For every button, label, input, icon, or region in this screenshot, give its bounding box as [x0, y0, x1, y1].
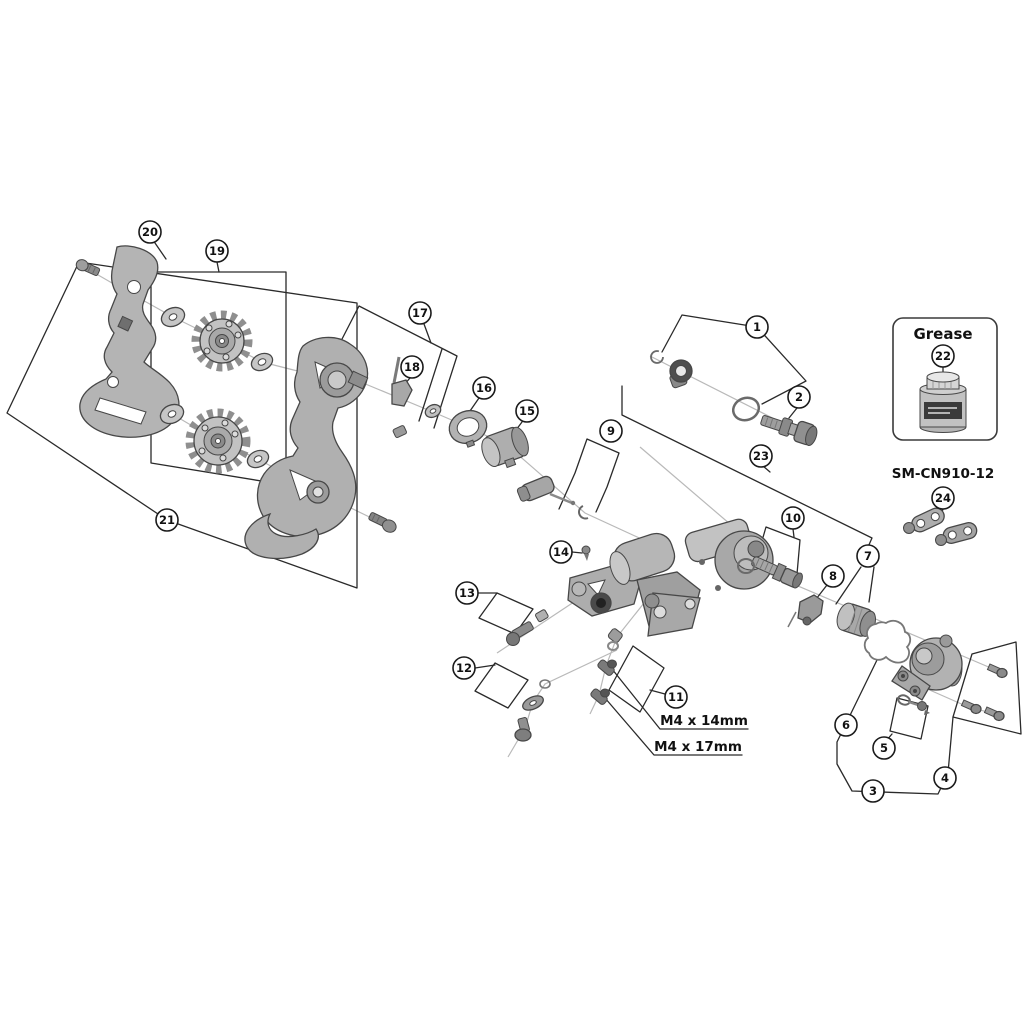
svg-text:17: 17: [412, 306, 428, 320]
callout-13: 13: [456, 582, 478, 604]
callout-6: 6: [835, 714, 857, 736]
svg-text:10: 10: [785, 511, 801, 525]
callout-4: 4: [934, 767, 956, 789]
callout-1: 1: [746, 316, 768, 338]
callout-15: 15: [516, 400, 538, 422]
svg-text:19: 19: [209, 244, 225, 258]
callout-2: 2: [788, 386, 810, 408]
svg-text:3: 3: [869, 784, 877, 798]
guide-pulley: [196, 315, 248, 367]
tension-pulley: [190, 413, 246, 469]
derailleur-body: [568, 517, 773, 636]
svg-text:11: 11: [668, 690, 684, 704]
callout-17: 17: [409, 302, 431, 324]
group-11-box: [609, 646, 665, 712]
callout-21: 21: [156, 509, 178, 531]
svg-text:14: 14: [553, 545, 569, 559]
callout-7: 7: [857, 545, 879, 567]
svg-text:7: 7: [864, 549, 872, 563]
svg-text:18: 18: [404, 360, 420, 374]
c-ring-group-1: [651, 351, 762, 424]
lever-screw-group-5: [897, 694, 930, 715]
svg-text:4: 4: [941, 771, 949, 785]
bolt-group-12: [515, 680, 550, 741]
callout-22: 22: [932, 345, 954, 367]
svg-text:24: 24: [935, 491, 951, 505]
plate-bolt-top-left: [74, 258, 100, 278]
callout-18: 18: [401, 356, 423, 378]
svg-text:13: 13: [459, 586, 475, 600]
callout-12: 12: [453, 657, 475, 679]
svg-text:15: 15: [519, 404, 535, 418]
screw-spec-2-label: M4 x 17mm: [654, 739, 742, 755]
callout-24: 24: [932, 487, 954, 509]
callout-19: 19: [206, 240, 228, 262]
grease-jar: [920, 372, 966, 433]
chain-quick-links: [904, 506, 979, 546]
callout-16: 16: [473, 377, 495, 399]
cap-part-15: [478, 424, 534, 474]
exploded-diagram-page: Grease SM-CN910-12 M4 x 14mm M4 x 17mm 1…: [0, 0, 1024, 1024]
svg-text:5: 5: [880, 741, 888, 755]
svg-text:22: 22: [935, 349, 951, 363]
svg-text:21: 21: [159, 513, 175, 527]
callout-23: 23: [750, 445, 772, 467]
washer-part-18: [423, 402, 443, 420]
svg-text:12: 12: [456, 661, 472, 675]
bolt-group-13: [507, 609, 549, 645]
outer-plate-bolt: [367, 511, 398, 534]
callout-20: 20: [139, 221, 161, 243]
svg-text:16: 16: [476, 381, 492, 395]
svg-text:9: 9: [607, 424, 615, 438]
screw-part-14: [582, 546, 590, 561]
pivot-pin: [607, 628, 623, 650]
svg-text:8: 8: [829, 569, 837, 583]
chain-model-label: SM-CN910-12: [892, 466, 995, 482]
svg-text:6: 6: [842, 718, 850, 732]
callout-3: 3: [862, 780, 884, 802]
group-23-bracket: [622, 386, 872, 547]
callout-10: 10: [782, 507, 804, 529]
gasket-seal: [865, 621, 910, 663]
svg-text:20: 20: [142, 225, 158, 239]
group-12-box: [475, 663, 528, 708]
callout-8: 8: [822, 565, 844, 587]
screws-group-4: [961, 664, 1007, 720]
callout-14: 14: [550, 541, 572, 563]
cable-lever-group-9: [516, 475, 588, 519]
callout-11: 11: [665, 686, 687, 708]
grease-label: Grease: [913, 325, 972, 343]
callout-9: 9: [600, 420, 622, 442]
screw-spec-1-label: M4 x 14mm: [660, 713, 748, 729]
clamp-part-8: [788, 595, 823, 627]
screws-group-11: [590, 659, 617, 706]
svg-text:23: 23: [753, 449, 769, 463]
exploded-diagram: Grease SM-CN910-12 M4 x 14mm M4 x 17mm 1…: [0, 0, 1024, 1024]
svg-text:2: 2: [795, 390, 803, 404]
svg-text:1: 1: [753, 320, 761, 334]
callout-5: 5: [873, 737, 895, 759]
